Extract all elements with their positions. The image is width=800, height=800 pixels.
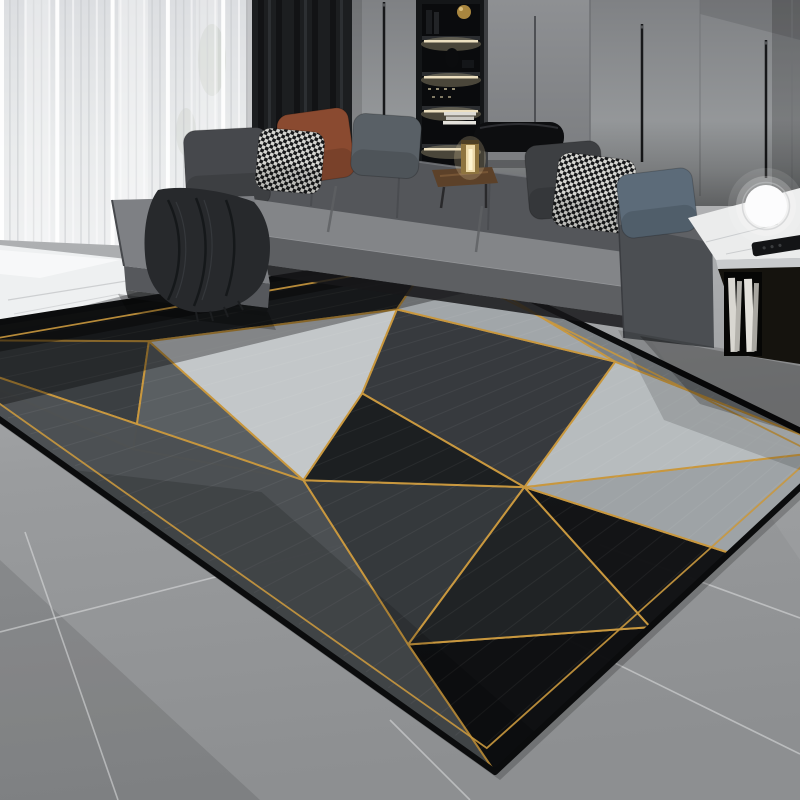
pillow-houndstooth-left bbox=[254, 127, 325, 195]
brass-ball-highlight bbox=[459, 7, 463, 11]
rod-tip bbox=[382, 3, 385, 6]
glass-glint bbox=[440, 96, 443, 98]
glass-glint bbox=[452, 88, 455, 90]
dark-book bbox=[426, 10, 432, 34]
dark-book bbox=[434, 12, 439, 34]
bowl-silhouette bbox=[462, 60, 474, 68]
living-room-photo bbox=[0, 0, 800, 800]
light-shaft bbox=[24, 0, 50, 250]
white-book bbox=[443, 121, 476, 125]
white-book bbox=[444, 112, 476, 116]
pillow-gray-green bbox=[350, 113, 422, 180]
pillow-gray-green-shade bbox=[350, 149, 420, 180]
brass-lamp-hot-core bbox=[469, 149, 473, 170]
brass-cylinder-lamp bbox=[454, 136, 486, 180]
glass-glint bbox=[432, 96, 435, 98]
brass-lamp-cap bbox=[461, 140, 479, 144]
rod-tip bbox=[640, 25, 643, 28]
glass-glint bbox=[448, 96, 451, 98]
led-strip bbox=[424, 76, 478, 79]
led-strip bbox=[424, 40, 478, 43]
white-book bbox=[446, 117, 474, 121]
led-glow bbox=[421, 73, 481, 87]
glass-glint bbox=[436, 88, 439, 90]
pillow-front-group bbox=[615, 167, 698, 240]
glass-glint bbox=[428, 88, 431, 90]
brass-ball-decor bbox=[457, 5, 471, 19]
glass-glint bbox=[444, 88, 447, 90]
rod-tip bbox=[764, 41, 767, 44]
sphere-lamp bbox=[745, 185, 787, 227]
throw-body bbox=[145, 188, 270, 312]
living-room-scene bbox=[0, 0, 800, 800]
vase-silhouette bbox=[445, 48, 459, 68]
pillow-blue bbox=[615, 167, 698, 240]
